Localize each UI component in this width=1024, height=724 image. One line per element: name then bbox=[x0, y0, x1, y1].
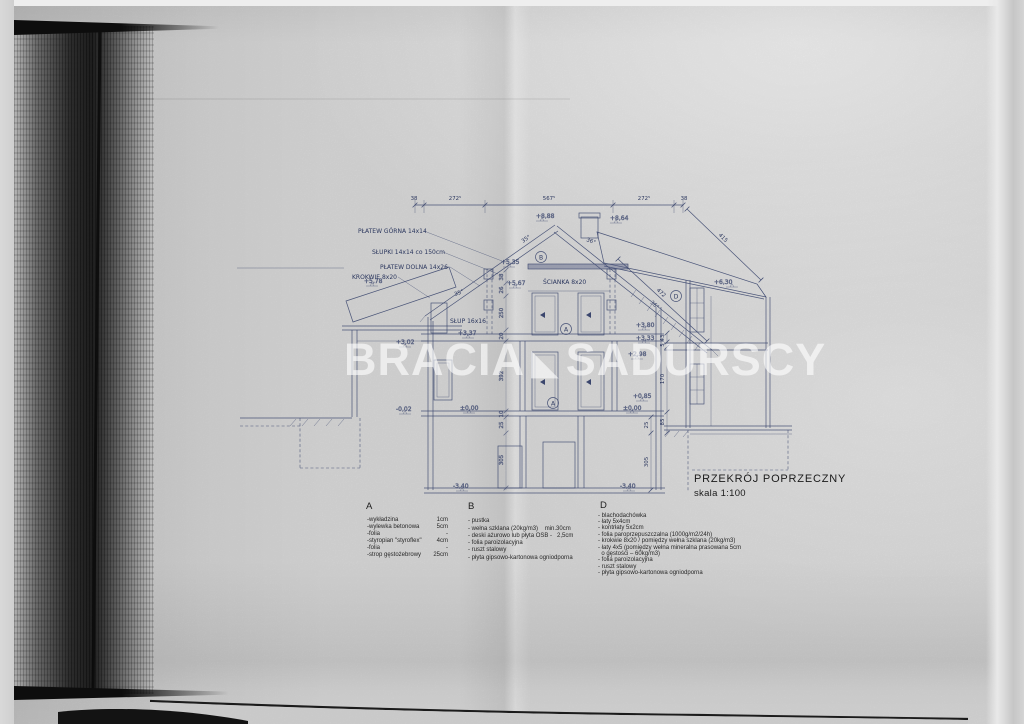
page-left-margin bbox=[0, 0, 14, 724]
watermark-text-left: BRACIA bbox=[344, 334, 525, 386]
page-top-margin bbox=[0, 0, 1024, 6]
book-spine-scan-band bbox=[14, 26, 154, 694]
watermark: BRACIA ◣ SADURSCY bbox=[344, 334, 774, 386]
watermark-triangle-icon: ◣ bbox=[531, 344, 560, 380]
scanned-blueprint-page: .ln{stroke:#3e4a73;stroke-width:0.7;fill… bbox=[0, 0, 1024, 724]
page-right-edge bbox=[986, 0, 1024, 724]
watermark-text-right: SADURSCY bbox=[566, 334, 827, 386]
spine-crease bbox=[92, 26, 102, 694]
